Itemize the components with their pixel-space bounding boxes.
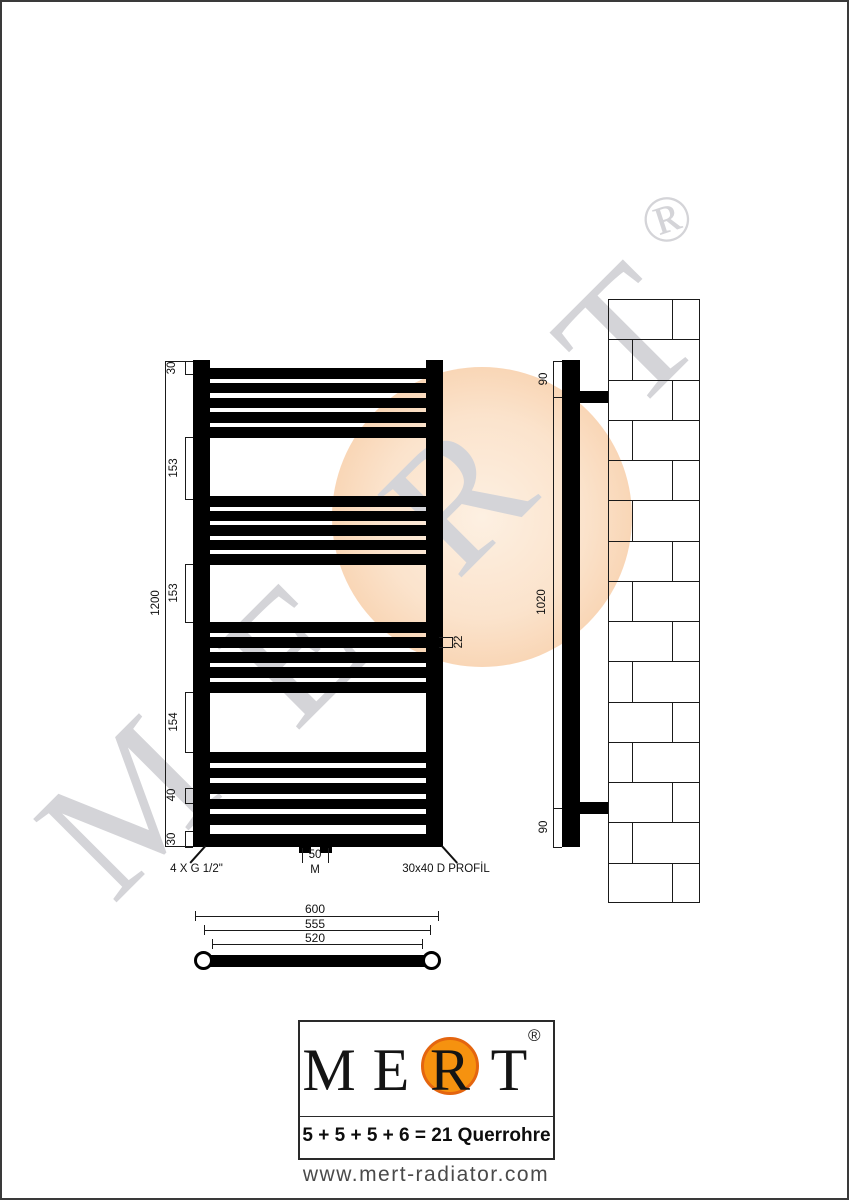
- wall-bracket-top: [580, 391, 608, 403]
- website-text: www.mert-radiator.com: [264, 1163, 588, 1187]
- radiator-rung: [193, 511, 443, 522]
- dim-label-1020: 1020: [535, 572, 549, 632]
- radiator-rung: [193, 752, 443, 763]
- logo-letter-t: T: [491, 1040, 528, 1100]
- dim-tick: [422, 939, 423, 949]
- radiator-rung: [193, 368, 443, 379]
- logo-registered-icon: ®: [528, 1026, 541, 1046]
- logo-separator: [298, 1116, 555, 1117]
- side-radiator-profile: [562, 360, 580, 847]
- dim-tick: [185, 374, 193, 375]
- tube-formula-text: 5 + 5 + 5 + 6 = 21 Querrohre: [298, 1125, 555, 1147]
- dim-tick: [185, 437, 193, 438]
- logo-letter-e: E: [373, 1040, 410, 1100]
- dim-tick: [185, 752, 193, 753]
- dim-tick: [185, 831, 193, 832]
- dim-tick: [212, 939, 213, 949]
- dim-tick: [185, 361, 193, 362]
- radiator-rung: [193, 412, 443, 423]
- dim-30bot-line: [185, 831, 186, 847]
- dim-tick: [185, 622, 193, 623]
- dim-tick: [185, 847, 193, 848]
- radiator-rung: [193, 496, 443, 507]
- dim-tick: [439, 647, 452, 648]
- dim-tick: [553, 808, 562, 809]
- dim-tick: [439, 637, 452, 638]
- dim-label-30-top: 30: [165, 338, 179, 398]
- dim-tick: [185, 564, 193, 565]
- dim-label-22: 22: [452, 612, 466, 672]
- radiator-rung: [193, 427, 443, 438]
- radiator-rung: [193, 637, 443, 648]
- logo-letter-r: R: [430, 1040, 470, 1100]
- dim-label-50: 50: [295, 849, 335, 861]
- dim-label-90-bottom: 90: [537, 797, 551, 857]
- dim-153b-line: [185, 564, 186, 622]
- dim-30top-line: [185, 361, 186, 374]
- radiator-rung: [193, 799, 443, 810]
- dim-tick: [204, 925, 205, 935]
- dim-154-line: [185, 692, 186, 752]
- dim-40-line: [185, 788, 186, 803]
- dim-label-555: 555: [285, 917, 345, 931]
- dim-tick: [438, 911, 439, 921]
- profile-note: 30x40 D PROFİL: [397, 863, 495, 875]
- radiator-rung: [193, 768, 443, 779]
- wall-bracket-bottom: [580, 802, 608, 814]
- dim-label-90-top: 90: [537, 349, 551, 409]
- radiator-rung: [193, 540, 443, 551]
- dim-tick: [185, 692, 193, 693]
- logo-letter-m: M: [302, 1040, 355, 1100]
- dim-label-153-gap1: 153: [167, 438, 181, 498]
- radiator-rung: [193, 525, 443, 536]
- dim-label-154: 154: [167, 692, 181, 752]
- topview-left-endcap: [194, 951, 213, 970]
- dim-tick: [430, 925, 431, 935]
- brick-wall: [608, 299, 700, 903]
- dim-label-1200: 1200: [149, 573, 163, 633]
- center-connection-label: M: [295, 864, 335, 876]
- dim-153a-line: [185, 437, 186, 499]
- dim-tick: [553, 361, 562, 362]
- radiator-rung: [193, 622, 443, 633]
- dim-label-600: 600: [285, 902, 345, 916]
- fitting-note: 4 X G 1/2": [149, 863, 244, 875]
- dim-label-520: 520: [285, 931, 345, 945]
- radiator-rung: [193, 783, 443, 794]
- radiator-rung: [193, 667, 443, 678]
- radiator-rung: [193, 834, 443, 847]
- dim-tick: [185, 788, 193, 789]
- radiator-rung: [193, 652, 443, 663]
- radiator-rung: [193, 383, 443, 394]
- dim-label-153-gap2: 153: [167, 563, 181, 623]
- radiator-rung: [193, 398, 443, 409]
- dim-tick: [195, 911, 196, 921]
- dim-label-30-bottom: 30: [165, 809, 179, 869]
- dim-tick: [553, 397, 562, 398]
- dim-tick: [553, 847, 562, 848]
- radiator-rung: [193, 814, 443, 825]
- radiator-rung: [193, 682, 443, 693]
- dim-tick: [185, 803, 193, 804]
- dim-520-line: [212, 944, 423, 945]
- technical-drawing-page: M E R T ® 1200 30 153 153 154 40 30: [0, 0, 849, 1200]
- radiator-rung: [193, 554, 443, 565]
- topview-right-endcap: [422, 951, 441, 970]
- side-dim-line: [553, 361, 554, 847]
- topview-tube-bar: [201, 955, 432, 967]
- dim-tick: [185, 499, 193, 500]
